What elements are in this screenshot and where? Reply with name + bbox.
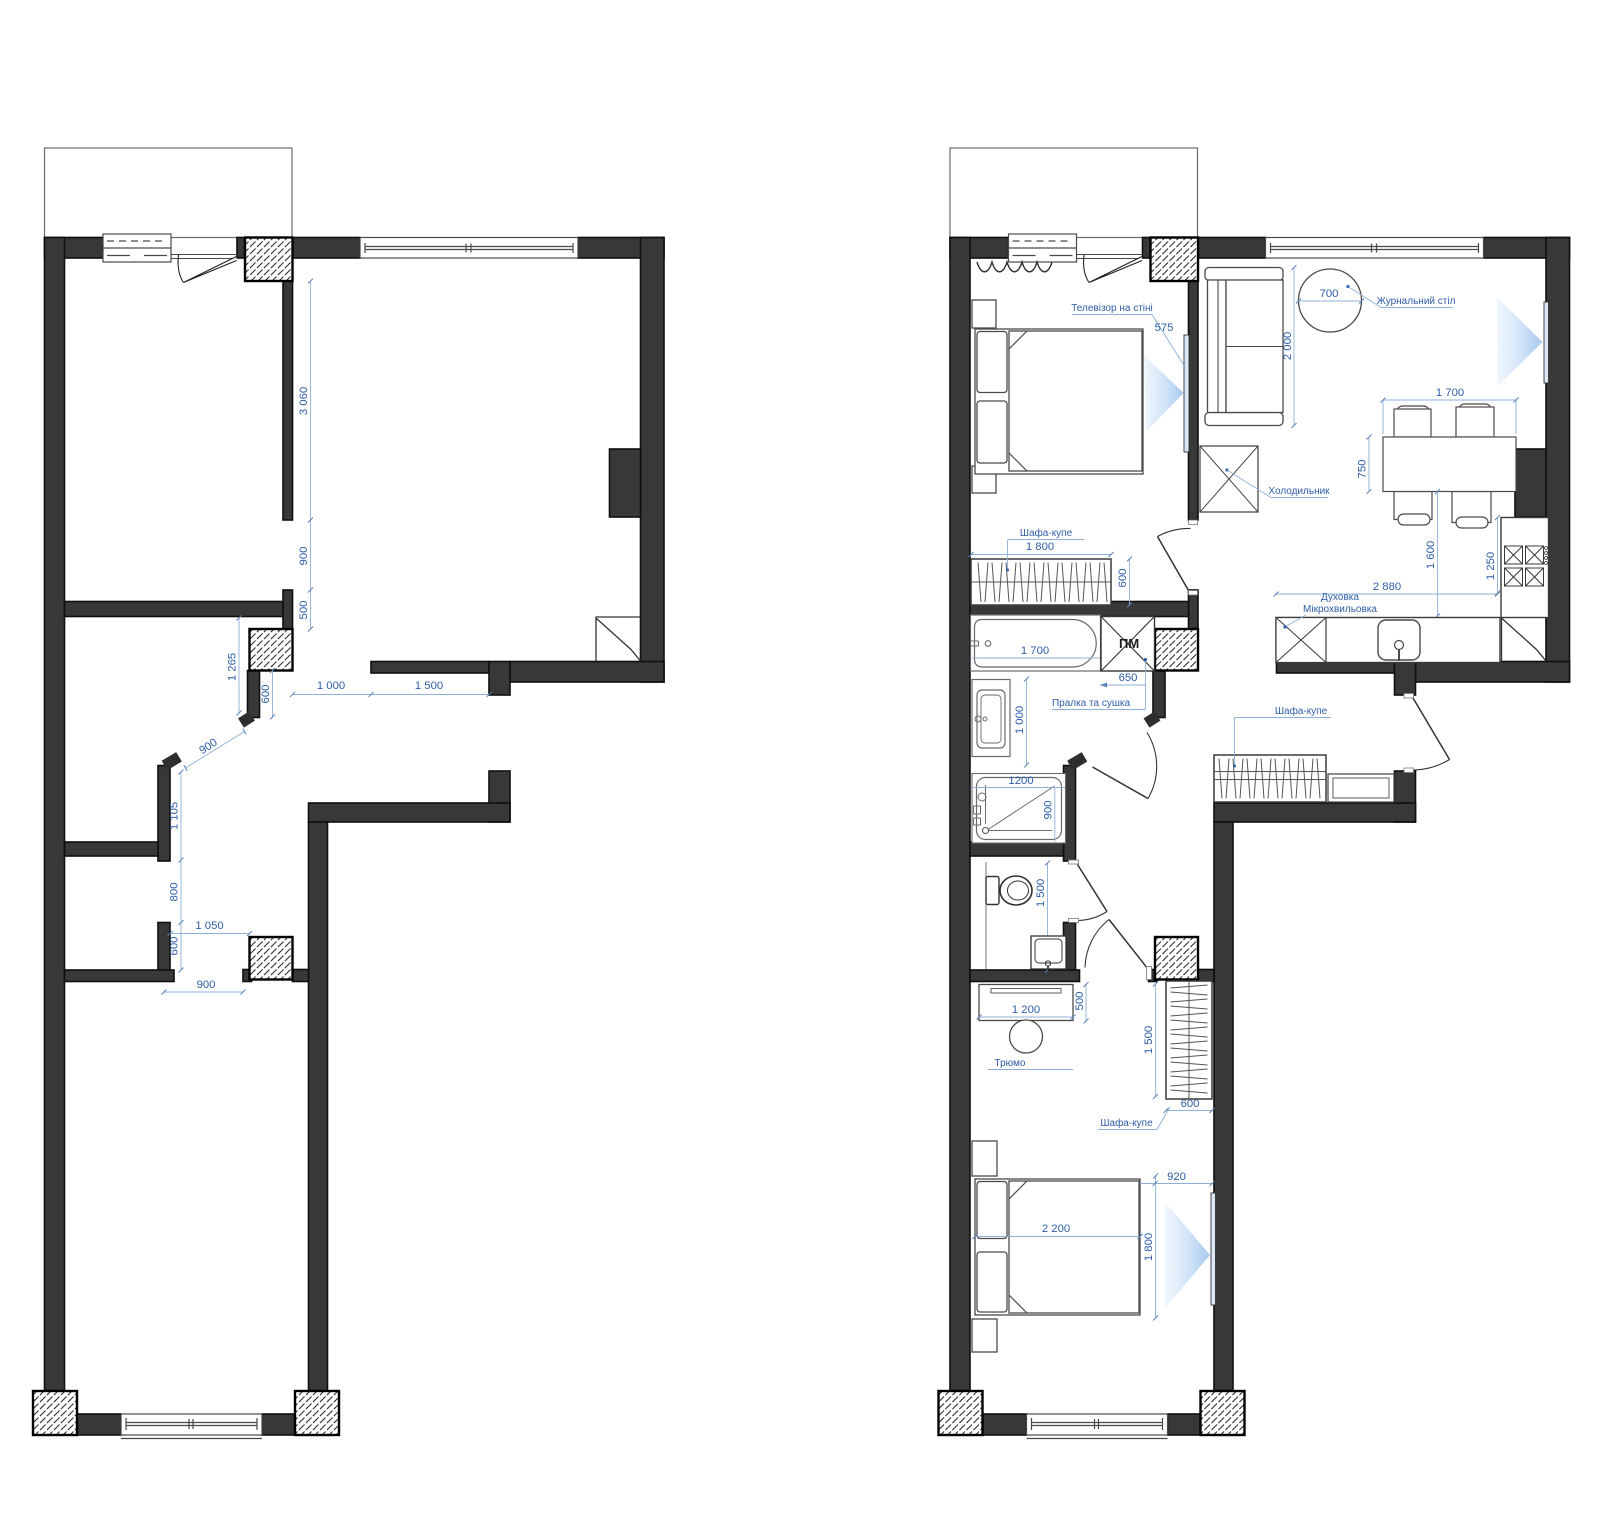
svg-text:Журнальний стіл: Журнальний стіл [1377,296,1456,307]
svg-text:900: 900 [298,547,310,566]
svg-text:1 050: 1 050 [195,920,223,932]
svg-text:Телевізор на стіні: Телевізор на стіні [1071,303,1153,314]
svg-text:ПМ: ПМ [1119,636,1139,651]
svg-text:1 500: 1 500 [415,680,443,692]
svg-text:1200: 1200 [1008,775,1033,787]
svg-text:2 880: 2 880 [1373,581,1401,593]
svg-text:1 700: 1 700 [1436,387,1464,399]
svg-text:800: 800 [169,883,181,902]
svg-text:2 000: 2 000 [1282,332,1294,360]
svg-text:1 500: 1 500 [1035,879,1047,907]
svg-text:Шафа-купе: Шафа-купе [1100,1117,1153,1129]
svg-text:575: 575 [1155,322,1174,334]
svg-text:1 250: 1 250 [1485,552,1497,580]
svg-text:650: 650 [1119,672,1138,684]
svg-text:1 800: 1 800 [1026,541,1054,553]
svg-text:1 200: 1 200 [1012,1004,1040,1016]
svg-text:1 800: 1 800 [1143,1233,1155,1261]
svg-text:500: 500 [1074,992,1086,1011]
svg-text:1 700: 1 700 [1021,645,1049,657]
svg-text:1 500: 1 500 [1143,1026,1155,1054]
svg-text:Шафа-купе: Шафа-купе [1275,705,1328,717]
svg-text:600: 600 [260,685,272,704]
svg-text:600: 600 [1117,569,1129,588]
svg-text:Холодильник: Холодильник [1268,486,1330,497]
svg-text:Трюмо: Трюмо [995,1058,1026,1069]
svg-text:1 000: 1 000 [317,680,345,692]
svg-text:700: 700 [1320,288,1339,300]
svg-text:600: 600 [1181,1098,1200,1110]
svg-text:600: 600 [169,937,181,956]
svg-text:Духовка: Духовка [1321,592,1359,603]
svg-text:Мікрохвильовка: Мікрохвильовка [1303,604,1377,615]
svg-text:2 200: 2 200 [1042,1223,1070,1235]
svg-text:Пралка та сушка: Пралка та сушка [1052,698,1131,709]
svg-text:1 265: 1 265 [227,653,239,681]
svg-text:Шафа-купе: Шафа-купе [1020,527,1073,539]
svg-text:920: 920 [1167,1171,1186,1183]
svg-text:900: 900 [197,979,216,991]
svg-text:1 105: 1 105 [169,802,181,830]
svg-text:500: 500 [298,601,310,620]
svg-text:750: 750 [1357,460,1369,479]
svg-text:900: 900 [1043,801,1055,820]
svg-text:1 000: 1 000 [1014,706,1026,734]
svg-text:1 600: 1 600 [1425,541,1437,569]
svg-text:3 060: 3 060 [298,387,310,415]
